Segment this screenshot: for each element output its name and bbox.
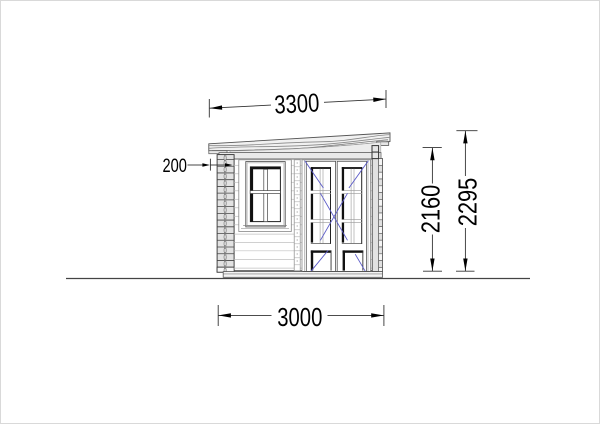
svg-text:2160: 2160	[417, 185, 446, 234]
svg-text:200: 200	[163, 154, 187, 177]
svg-text:2295: 2295	[454, 178, 483, 227]
svg-text:3300: 3300	[274, 88, 321, 119]
svg-text:3000: 3000	[277, 303, 322, 332]
